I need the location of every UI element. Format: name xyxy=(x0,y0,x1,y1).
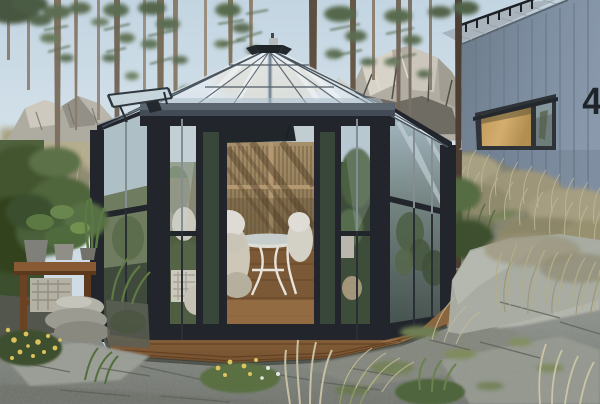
svg-text:4: 4 xyxy=(582,80,600,123)
